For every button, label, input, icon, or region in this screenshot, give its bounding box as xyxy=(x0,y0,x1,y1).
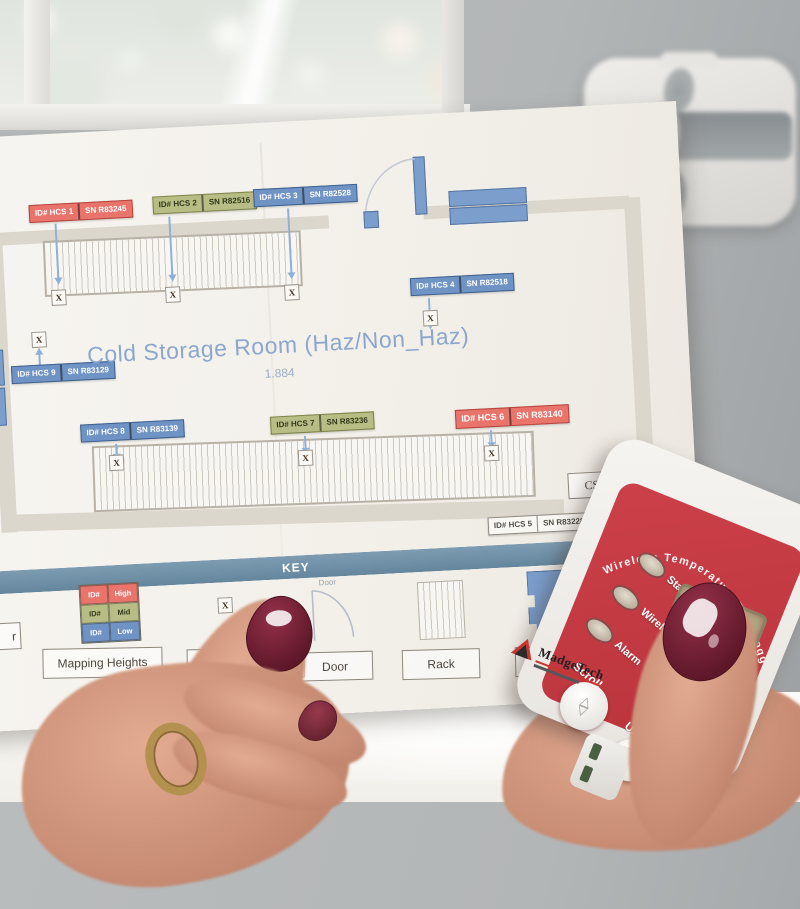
sensor-id: ID# HCS 8 xyxy=(81,423,130,442)
sensor-id: ID# HCS 1 xyxy=(30,203,79,222)
key-header-label: KEY xyxy=(282,559,310,574)
position-marker: X xyxy=(484,445,500,462)
sensor-id: ID# HCS 6 xyxy=(456,408,510,428)
connector-pin xyxy=(588,743,602,761)
sensor-id: ID# HCS 3 xyxy=(254,188,303,207)
rack-glyph xyxy=(417,580,466,640)
key-mid-label: Mid xyxy=(108,602,139,623)
sensor-id: ID# HCS 7 xyxy=(271,415,320,434)
position-marker: X xyxy=(165,286,181,303)
key-high-id: ID# xyxy=(80,584,109,604)
wall-right xyxy=(624,197,653,449)
window-frame-right xyxy=(442,0,464,130)
sensor-label-hcs8: ID# HCS 8 SN R83139 xyxy=(80,419,184,442)
sensor-label-hcs7: ID# HCS 7 SN R83236 xyxy=(270,411,374,434)
scroll-down-icon: ▽ xyxy=(576,704,589,717)
key-low-id: ID# xyxy=(81,622,110,642)
sensor-label-hcs3: ID# HCS 3 SN R82528 xyxy=(253,184,357,207)
position-marker: X xyxy=(109,454,125,471)
sensor-sn: SN R83140 xyxy=(509,405,568,425)
sensor-sn: SN R82528 xyxy=(302,185,356,204)
connector-pin xyxy=(579,765,593,783)
key-low-label: Low xyxy=(109,621,140,642)
sensor-sn: SN R83236 xyxy=(319,412,373,431)
key-door-box: Door xyxy=(297,651,374,682)
position-marker: X xyxy=(298,450,314,467)
sensor-label-hcs1: ID# HCS 1 SN R83245 xyxy=(29,200,133,223)
key-high-label: High xyxy=(107,583,138,604)
bracket-tab xyxy=(660,52,718,68)
sensor-id: ID# HCS 2 xyxy=(153,195,202,214)
sensor-label-hcs2: ID# HCS 2 SN R82516 xyxy=(152,191,256,214)
key-marker-sample: X xyxy=(217,597,233,614)
sensor-id: ID# HCS 4 xyxy=(411,277,460,296)
sensor-sn: SN R83139 xyxy=(129,420,183,439)
key-mid-id: ID# xyxy=(81,603,110,623)
sensor-id: ID# HCS 5 xyxy=(489,516,538,535)
sensor-label-hcs6: ID# HCS 6 SN R83140 xyxy=(455,404,569,429)
key-rack-box: Rack xyxy=(402,648,481,680)
rack-bottom xyxy=(92,431,536,512)
key-heights-grid: ID# High ID# Mid ID# Low xyxy=(78,582,141,644)
sensor-sn: SN R82518 xyxy=(459,274,513,293)
key-edge-partial-box: r xyxy=(0,622,22,652)
position-marker: X xyxy=(51,289,67,306)
position-marker: X xyxy=(284,284,300,301)
sensor-id: ID# HCS 9 xyxy=(12,365,61,384)
door-stop xyxy=(363,211,379,229)
door-glyph-label: Door xyxy=(318,577,336,587)
sensor-sn: SN R83245 xyxy=(78,201,132,220)
sensor-label-hcs4: ID# HCS 4 SN R82518 xyxy=(410,273,514,296)
door-glyph xyxy=(309,587,358,645)
sensor-sn: SN R82516 xyxy=(201,192,255,211)
top-chiller-lower xyxy=(449,204,528,225)
